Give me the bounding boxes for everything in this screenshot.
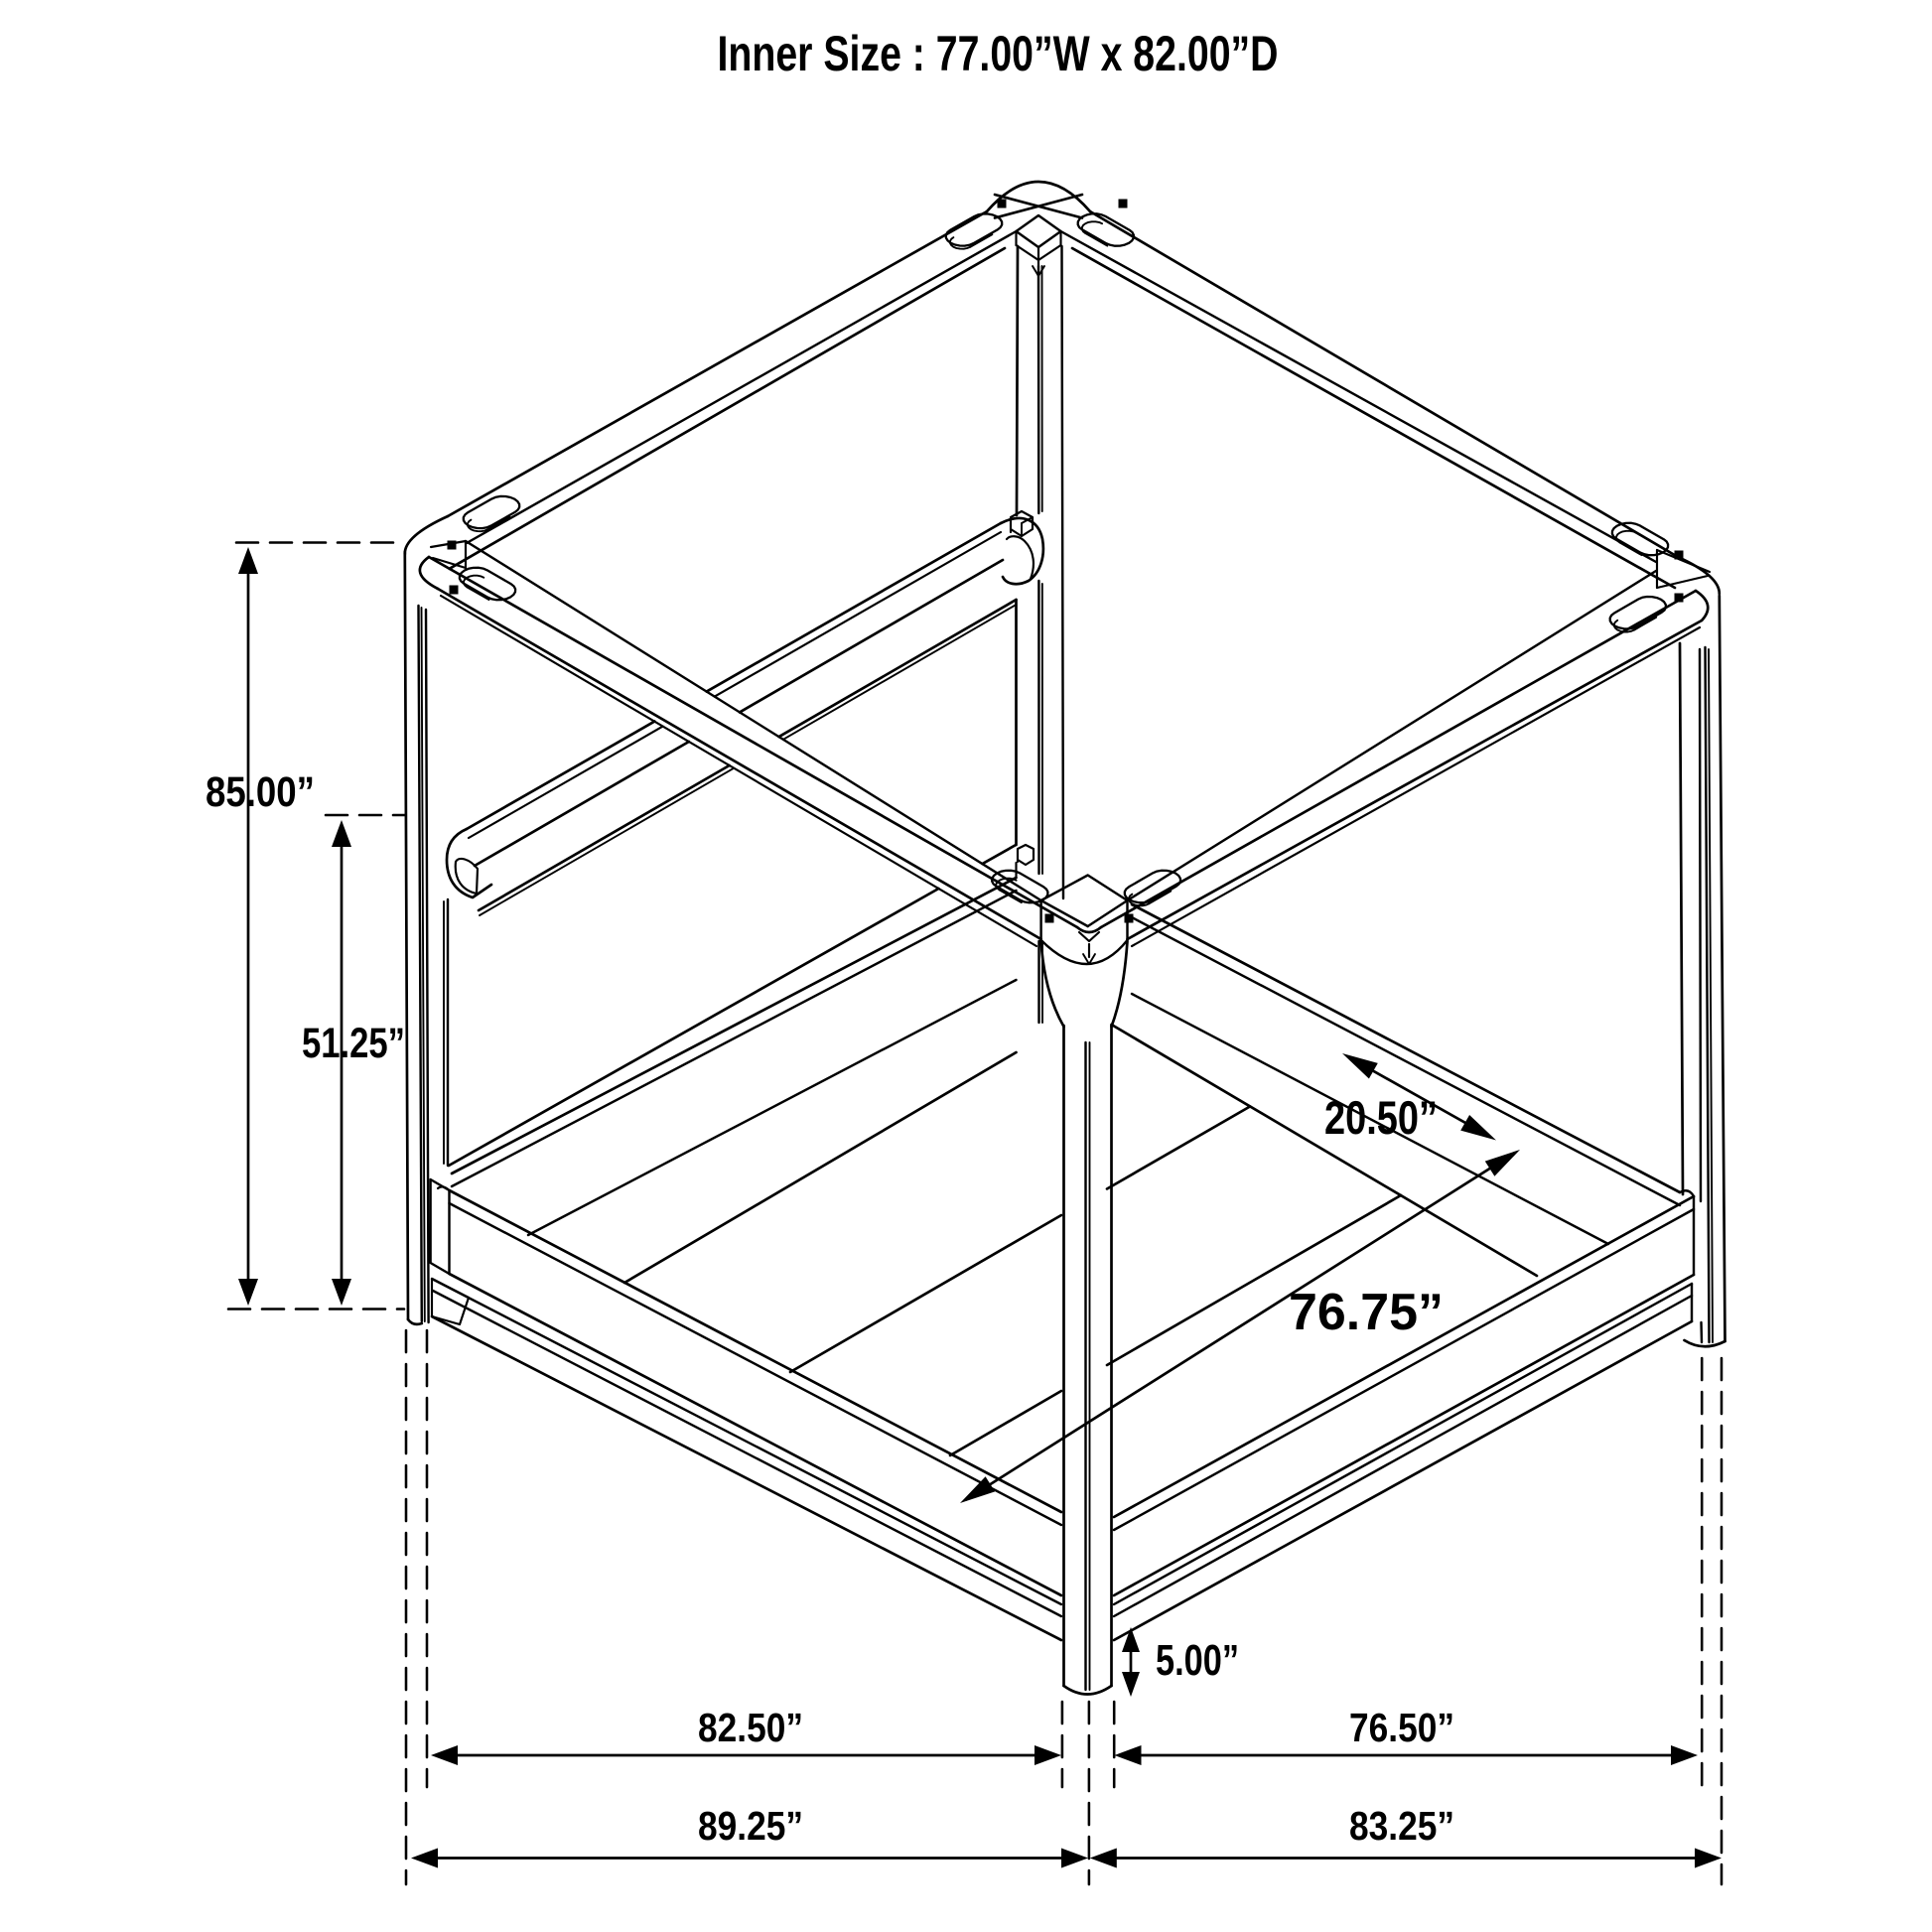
svg-text:82.50”: 82.50” bbox=[698, 1705, 803, 1750]
svg-text:89.25”: 89.25” bbox=[698, 1803, 803, 1849]
svg-text:76.75”: 76.75” bbox=[1289, 1284, 1444, 1341]
svg-text:83.25”: 83.25” bbox=[1349, 1803, 1454, 1849]
svg-text:Inner Size : 77.00”W x 82.00”D: Inner Size : 77.00”W x 82.00”D bbox=[718, 26, 1279, 81]
svg-text:20.50”: 20.50” bbox=[1324, 1091, 1438, 1144]
svg-text:5.00”: 5.00” bbox=[1156, 1636, 1239, 1685]
svg-text:76.50”: 76.50” bbox=[1349, 1705, 1454, 1750]
svg-text:51.25”: 51.25” bbox=[302, 1020, 405, 1067]
svg-text:85.00”: 85.00” bbox=[206, 768, 315, 816]
